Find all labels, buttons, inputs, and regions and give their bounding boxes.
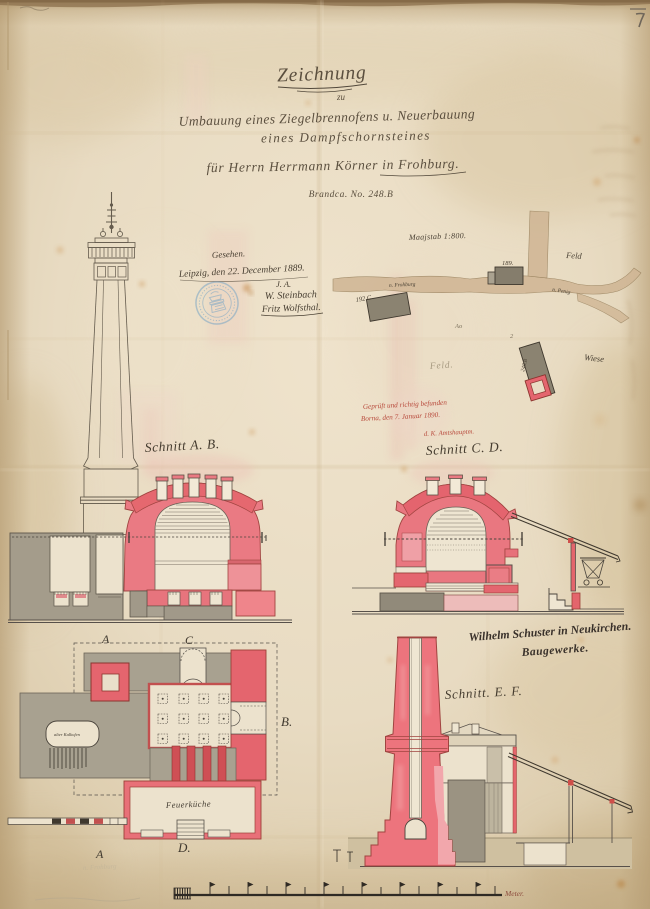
svg-text:B.: B.	[281, 714, 292, 729]
svg-text:Feuerküche: Feuerküche	[165, 798, 211, 810]
svg-text:Ao: Ao	[454, 323, 463, 330]
svg-text:D.: D.	[177, 840, 191, 855]
svg-text:eines Dampfschornsteines: eines Dampfschornsteines	[261, 128, 431, 146]
svg-text:alter Kalkofen: alter Kalkofen	[54, 732, 81, 737]
svg-text:Feld.: Feld.	[429, 360, 454, 372]
svg-text:C: C	[185, 633, 194, 647]
svg-text:Brandca. No. 248.B: Brandca. No. 248.B	[309, 190, 394, 200]
svg-text:zu: zu	[336, 92, 346, 102]
svg-text:W. Steinbach: W. Steinbach	[265, 289, 317, 302]
svg-text:Zeichnung: Zeichnung	[277, 62, 367, 86]
svg-text:A: A	[101, 632, 110, 646]
svg-text:189.: 189.	[502, 260, 514, 267]
svg-text:J. A.: J. A.	[276, 279, 291, 289]
svg-text:Feld: Feld	[565, 250, 583, 261]
svg-text:Fritz Wolfsthal.: Fritz Wolfsthal.	[261, 302, 321, 315]
svg-text:A: A	[95, 847, 104, 861]
svg-text:Meter.: Meter.	[504, 889, 524, 898]
svg-text:Gesehen.: Gesehen.	[212, 248, 246, 260]
svg-text:Wiese: Wiese	[584, 352, 605, 364]
